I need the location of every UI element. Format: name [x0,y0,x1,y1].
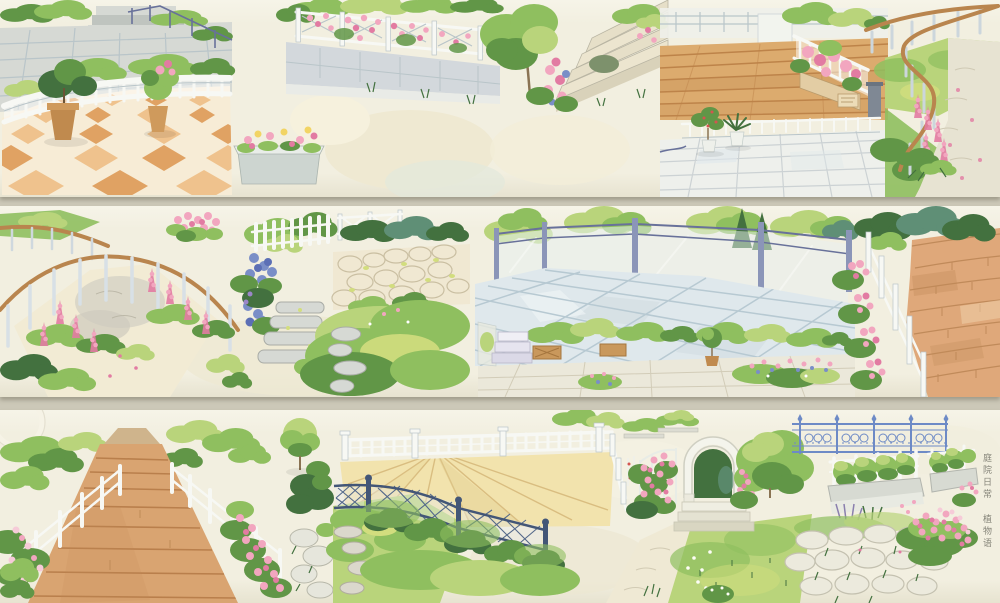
scene-tree-and-stones [280,418,336,598]
vertical-caption: 庭院日常 植物语 [980,453,993,569]
scene-boardwalk [0,420,292,603]
scene-cobbles-flowers [785,508,978,603]
scene-rose-fence-wall [276,0,504,104]
scene-flower-cluster [166,212,223,242]
scene-small-planter [928,446,979,507]
tape-strip-1 [0,0,1000,197]
scene-wood-deck [660,2,890,120]
washi-tape-photo: 庭院日常 植物语 [0,0,1000,603]
tape-strip-2 [0,206,1000,397]
scene-crossrail-cobbles [332,210,470,310]
scene-tile-plaza [660,107,885,197]
scene-tree-stairs [480,0,668,112]
scene-hedge-strips [622,410,699,438]
scene-bench-planter [828,451,924,520]
scene-meadow-stones [300,292,470,396]
tape-strip-3 [0,410,1000,603]
